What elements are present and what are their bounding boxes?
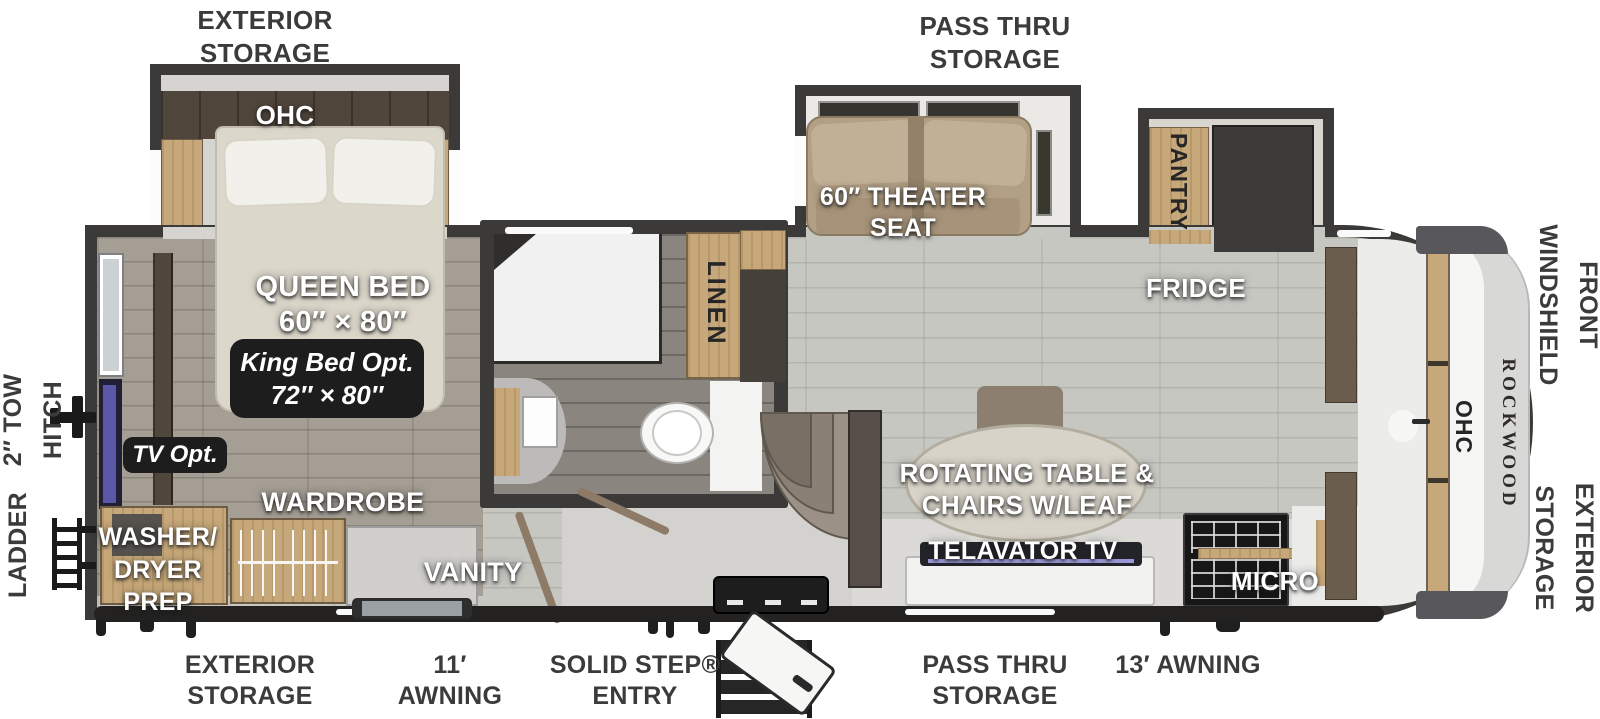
label-solid-step-entry: SOLID STEP® ENTRY — [515, 650, 755, 713]
awning-tab-4 — [648, 620, 658, 634]
label-exterior-storage-top: EXTERIOR STORAGE — [145, 4, 385, 69]
label-pantry: PANTRY — [1169, 124, 1193, 240]
awning-tab-1 — [96, 620, 106, 636]
bath-sink-basin — [522, 396, 558, 448]
entry-step-well — [713, 576, 829, 614]
fridge-box — [1212, 125, 1314, 227]
entry-well-slit-3 — [801, 600, 817, 605]
entry-door-handle — [791, 674, 814, 693]
floorplan-canvas: EXTERIOR STORAGE PASS THRU STORAGE FRONT… — [0, 0, 1600, 719]
entry-well-slit-1 — [727, 600, 743, 605]
top-wall-window — [505, 227, 633, 234]
rear-window — [98, 253, 124, 377]
fridge-extension — [1214, 226, 1314, 252]
shower-seat — [494, 234, 536, 270]
nightstand-left — [161, 139, 203, 227]
label-exterior-storage-front: EXTERIOR STORAGE — [1524, 438, 1600, 658]
hall-closet-body — [740, 270, 786, 382]
pillow-left — [223, 136, 329, 208]
label-ohc-front: OHC — [1454, 385, 1478, 469]
rear-tv — [99, 379, 122, 509]
kitchen-sink — [1388, 410, 1418, 442]
front-ohc-cabinet — [1426, 247, 1450, 601]
badge-tv-option: TV Opt. — [123, 437, 227, 473]
shower — [494, 234, 662, 364]
toilet-seat — [652, 410, 702, 456]
hall-closet-top — [740, 230, 786, 270]
kitchen-faucet — [1412, 419, 1430, 424]
label-theater-seat: 60″ THEATER SEAT — [783, 182, 1023, 243]
pillow-right — [331, 136, 437, 208]
theater-cushion-right — [920, 119, 1027, 186]
awning-tab-6 — [698, 620, 710, 634]
label-ladder: LADDER — [3, 465, 31, 625]
cap-bumper-top — [1416, 226, 1508, 254]
rear-tv-screen — [103, 385, 116, 503]
front-upper-cabinet-top — [1325, 247, 1357, 403]
label-queen-bed: QUEEN BED 60″ × 80″ — [223, 270, 463, 341]
label-front-windshield: FRONT WINDSHIELD — [1528, 195, 1600, 415]
label-televator-tv: TELAVATOR TV — [893, 536, 1153, 567]
cap-bumper-bottom — [1416, 591, 1508, 619]
toilet — [640, 402, 714, 464]
label-washer-dryer-prep: WASHER/ DRYER PREP — [68, 521, 248, 619]
label-linen: LINEN — [705, 243, 731, 363]
theater-cushion-left — [810, 119, 917, 186]
label-micro: MICRO — [1185, 566, 1365, 598]
label-wardrobe: WARDROBE — [233, 486, 453, 519]
label-awning-13: 13′ AWNING — [1068, 650, 1308, 681]
front-top-window — [1337, 230, 1391, 237]
badge-king-bed-option: King Bed Opt. 72″ × 80″ — [230, 339, 424, 418]
awning-tab-7 — [1160, 620, 1170, 636]
label-vanity: VANITY — [363, 556, 583, 589]
bedroom-slide-window-left — [150, 150, 161, 228]
awning-tab-5 — [666, 620, 674, 638]
awning-tab-8 — [1216, 620, 1240, 632]
toilet-bench — [710, 381, 762, 491]
vanity-sink-basin — [362, 601, 462, 616]
theater-side-window — [1036, 130, 1052, 216]
label-rotating-table: ROTATING TABLE & CHAIRS W/LEAF — [877, 458, 1177, 521]
bedroom-slide-window-right — [449, 150, 460, 228]
awning-tab-2 — [140, 620, 154, 632]
rail-window-right — [905, 609, 1055, 615]
label-ohc-bedroom: OHC — [230, 100, 340, 132]
bath-sink-cabinet — [494, 388, 520, 476]
entry-well-slit-2 — [765, 600, 781, 605]
label-pass-thru-top: PASS THRU STORAGE — [875, 10, 1115, 75]
wardrobe-rod — [238, 561, 338, 564]
vanity-sink-tablet — [352, 598, 472, 619]
awning-tab-3 — [186, 620, 196, 638]
label-rockwood-brand: ROCKWOOD — [1500, 349, 1520, 519]
rear-window-glass — [103, 259, 119, 371]
label-fridge: FRIDGE — [1096, 273, 1296, 305]
